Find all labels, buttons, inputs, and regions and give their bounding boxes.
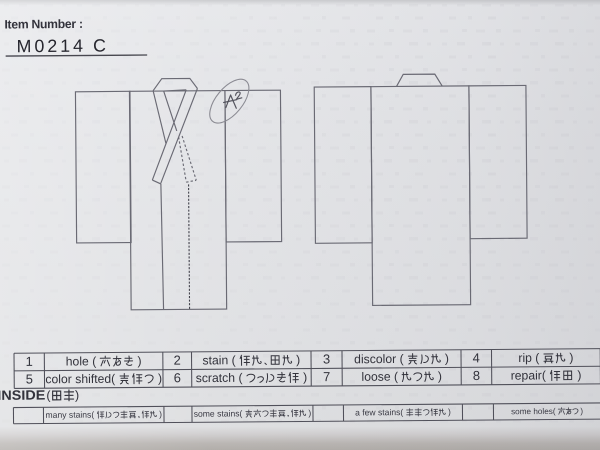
svg-text:2: 2 <box>173 353 180 368</box>
svg-text:scratch (: scratch ( <box>196 371 243 385</box>
svg-text:): ) <box>303 370 307 384</box>
svg-text:a few stains(: a few stains( <box>355 407 403 417</box>
svg-text:): ) <box>159 409 162 419</box>
svg-text:): ) <box>296 353 300 367</box>
svg-text:some stains(: some stains( <box>194 408 243 418</box>
svg-text:color shifted(: color shifted( <box>45 372 115 387</box>
svg-text:repair(: repair( <box>511 368 546 382</box>
svg-text:5: 5 <box>26 371 33 386</box>
svg-text:6: 6 <box>174 370 181 385</box>
svg-text:): ) <box>445 352 449 366</box>
svg-text:4: 4 <box>473 350 480 365</box>
svg-text:): ) <box>75 388 79 402</box>
svg-text:): ) <box>448 407 451 417</box>
svg-text:3: 3 <box>323 351 330 366</box>
svg-text:7: 7 <box>323 369 330 384</box>
svg-text:some holes(: some holes( <box>511 407 556 416</box>
svg-text:hole (: hole ( <box>66 354 97 368</box>
svg-text:): ) <box>577 368 581 382</box>
svg-text:): ) <box>158 371 162 385</box>
svg-text:): ) <box>438 369 442 383</box>
svg-text:discolor (: discolor ( <box>354 352 404 366</box>
svg-text:many stains(: many stains( <box>45 410 94 420</box>
svg-text:8: 8 <box>473 368 480 383</box>
svg-text:1: 1 <box>26 354 33 369</box>
svg-text:C: C <box>93 36 106 56</box>
svg-text:): ) <box>308 408 311 418</box>
svg-text:stain (: stain ( <box>202 353 235 367</box>
svg-text:Item Number :: Item Number : <box>4 17 82 32</box>
svg-text:): ) <box>137 354 141 368</box>
svg-text:): ) <box>569 351 573 365</box>
svg-text:rip (: rip ( <box>518 351 539 365</box>
svg-text:INSIDE: INSIDE <box>0 388 45 403</box>
svg-text:): ) <box>580 407 583 416</box>
svg-text:M0214: M0214 <box>17 36 87 57</box>
svg-text:loose (: loose ( <box>361 370 398 384</box>
